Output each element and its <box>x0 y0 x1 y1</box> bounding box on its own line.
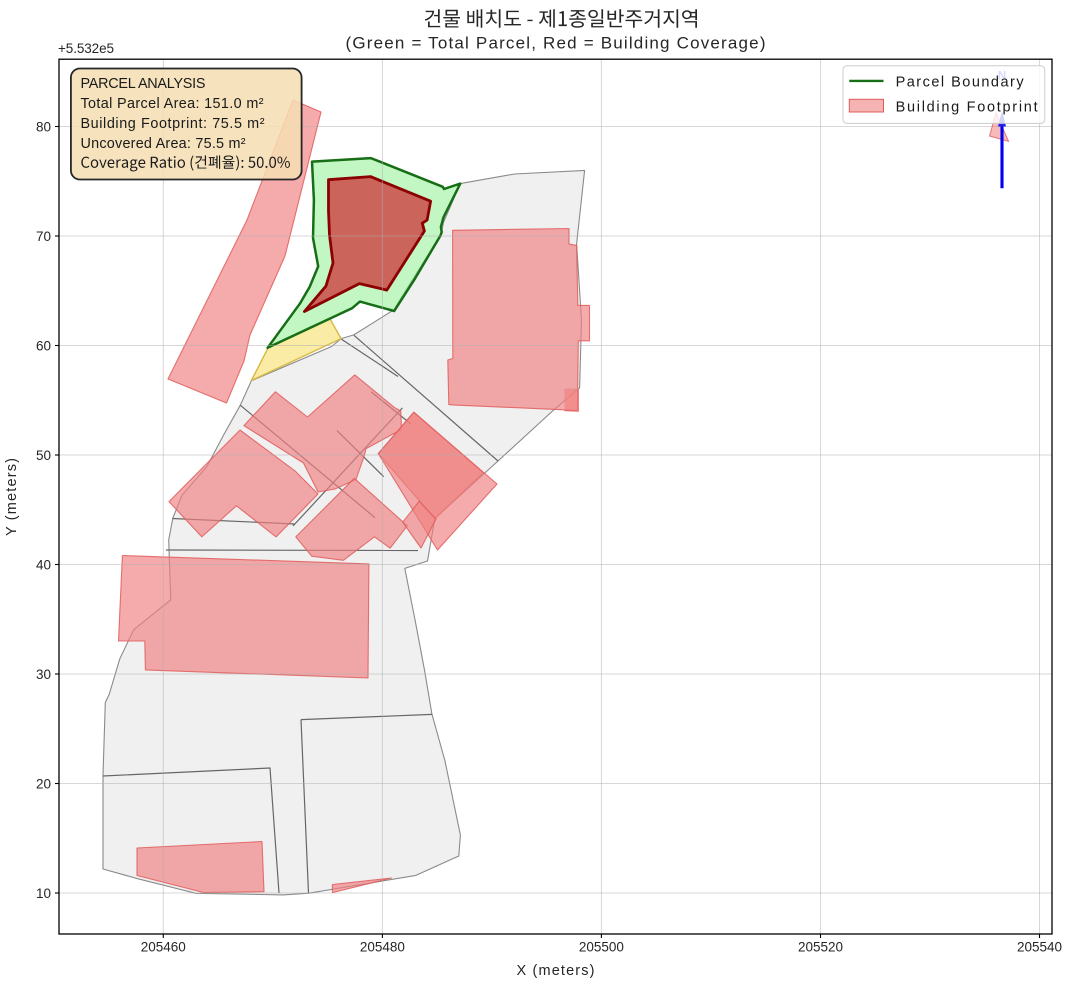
svg-text:80: 80 <box>36 119 51 134</box>
svg-text:X (meters): X (meters) <box>517 963 595 979</box>
svg-text:Building Footprint: Building Footprint <box>896 100 1038 116</box>
svg-text:20: 20 <box>36 776 51 791</box>
svg-text:205540: 205540 <box>1017 940 1062 955</box>
svg-text:Total Parcel Area: 151.0 m²: Total Parcel Area: 151.0 m² <box>81 96 264 112</box>
svg-text:(Green = Total Parcel, Red = B: (Green = Total Parcel, Red = Building Co… <box>346 34 766 53</box>
svg-text:70: 70 <box>36 229 51 244</box>
svg-text:10: 10 <box>36 886 51 901</box>
svg-text:Building Footprint: 75.5 m²: Building Footprint: 75.5 m² <box>81 116 265 132</box>
svg-text:205480: 205480 <box>360 940 405 955</box>
svg-text:60: 60 <box>36 338 51 353</box>
svg-text:50: 50 <box>36 448 51 463</box>
svg-text:PARCEL ANALYSIS: PARCEL ANALYSIS <box>81 76 206 92</box>
svg-text:Y (meters): Y (meters) <box>4 458 20 536</box>
svg-text:+5.532e5: +5.532e5 <box>58 41 114 56</box>
svg-text:205460: 205460 <box>141 940 186 955</box>
svg-text:30: 30 <box>36 667 51 682</box>
svg-text:Uncovered Area: 75.5 m²: Uncovered Area: 75.5 m² <box>81 136 246 152</box>
svg-text:205520: 205520 <box>798 940 843 955</box>
svg-text:40: 40 <box>36 557 51 572</box>
svg-text:205500: 205500 <box>579 940 624 955</box>
